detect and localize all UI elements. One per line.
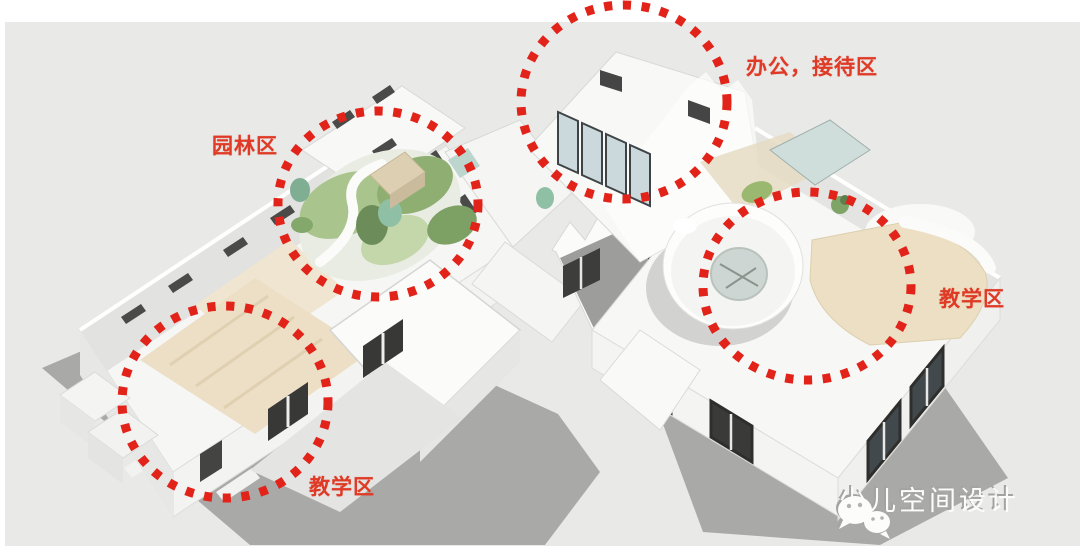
diagram-canvas: 园林区 办公，接待区 教学区 教学区 少儿空间设计 bbox=[0, 0, 1080, 546]
building-rendering bbox=[0, 0, 1080, 546]
zone-label-office-reception: 办公，接待区 bbox=[746, 57, 878, 78]
zone-label-teaching-left: 教学区 bbox=[309, 477, 375, 498]
zone-label-teaching-right: 教学区 bbox=[939, 289, 1005, 310]
zone-label-garden: 园林区 bbox=[212, 136, 278, 157]
watermark: 少儿空间设计 bbox=[831, 488, 1019, 515]
wechat-icon bbox=[831, 488, 899, 546]
